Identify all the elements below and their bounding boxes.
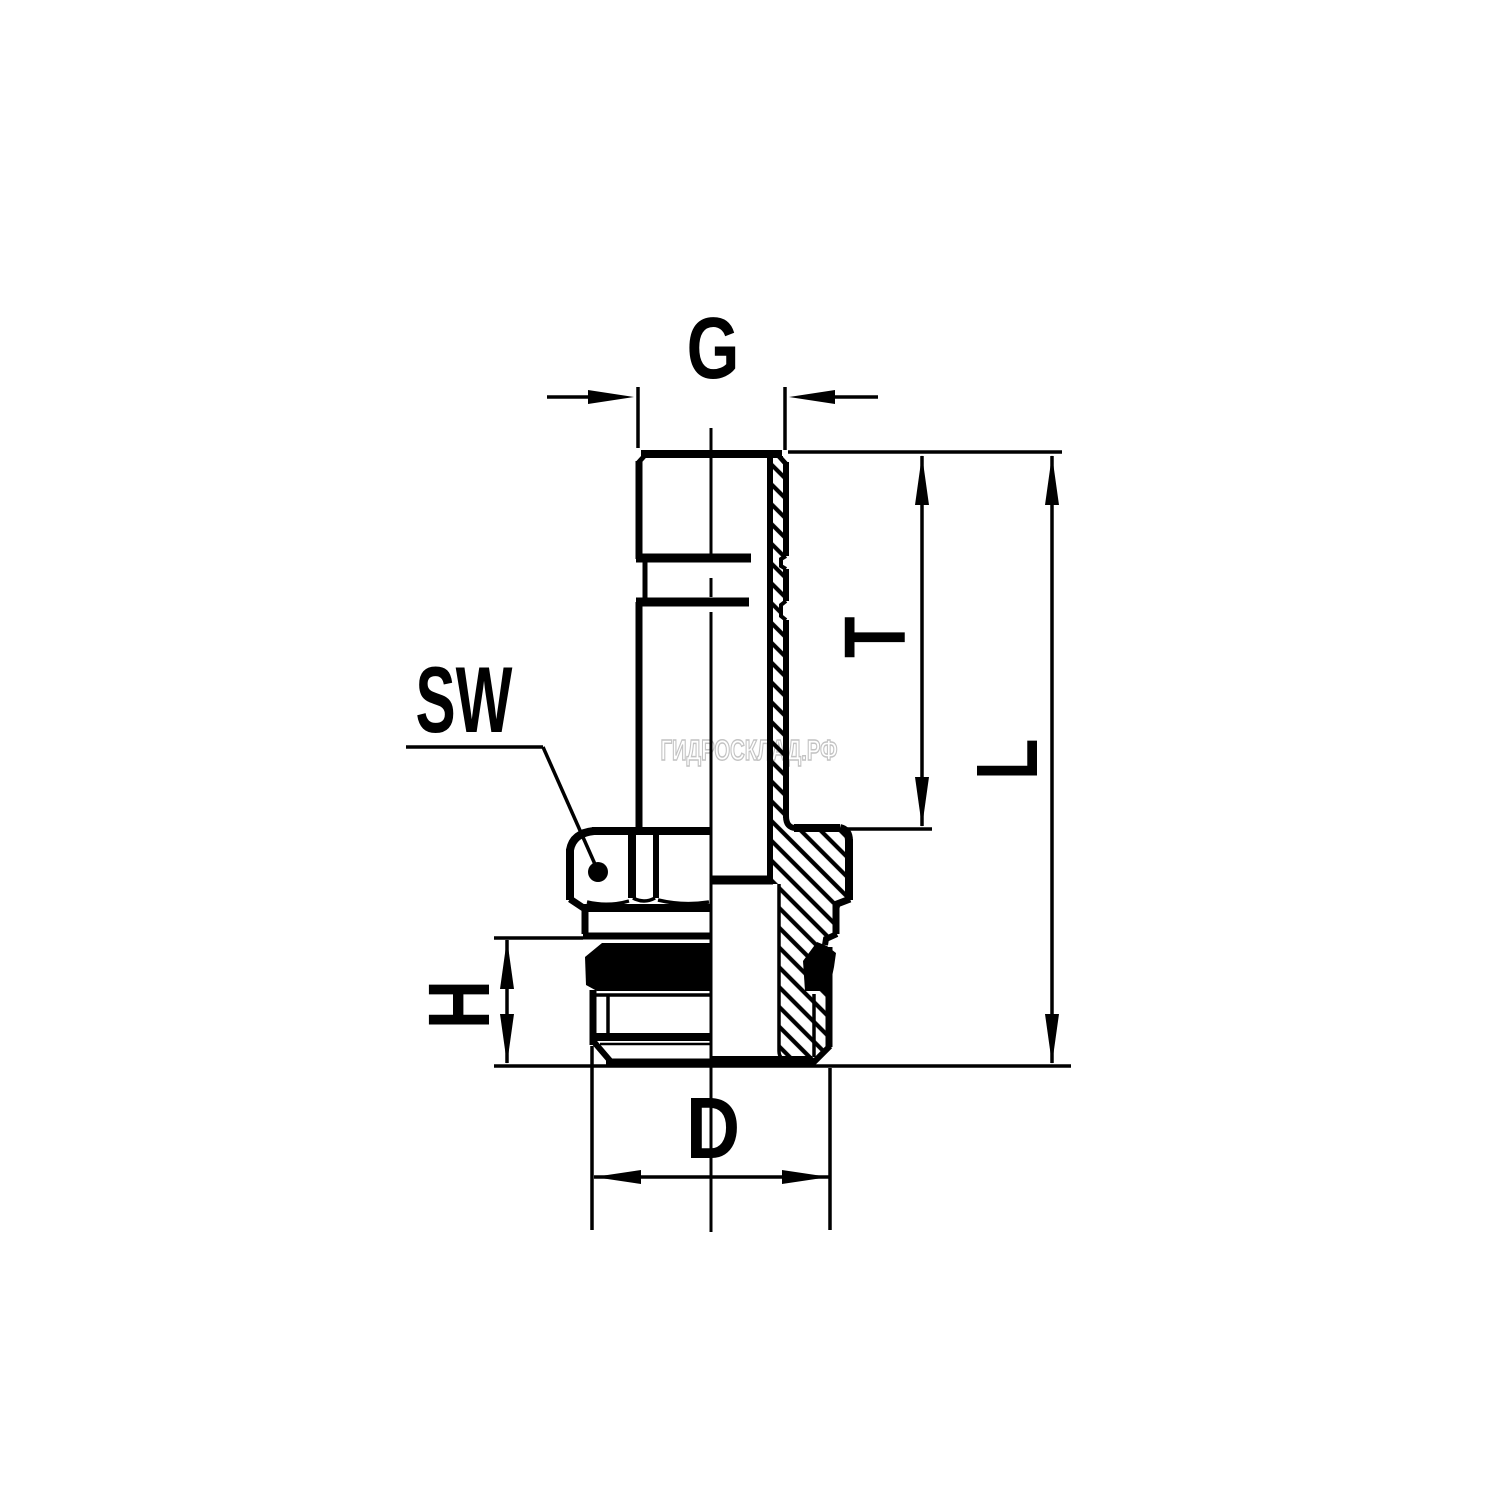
svg-text:L: L: [958, 739, 1056, 780]
svg-text:G: G: [687, 299, 740, 397]
svg-text:D: D: [686, 1081, 740, 1178]
svg-text:SW: SW: [416, 647, 513, 752]
svg-text:T: T: [826, 617, 924, 658]
svg-text:H: H: [410, 980, 508, 1029]
svg-text:ГИДРОСКЛАД.РФ: ГИДРОСКЛАД.РФ: [661, 735, 838, 767]
